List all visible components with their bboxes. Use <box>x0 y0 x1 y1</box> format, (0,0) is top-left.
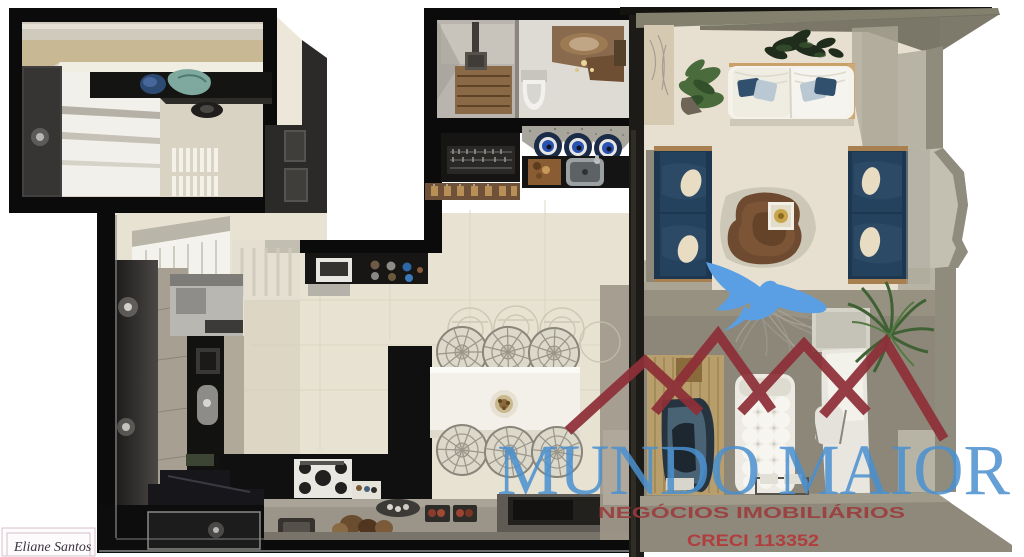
svg-text:NEGÓCIOS IMOBILIÁRIOS: NEGÓCIOS IMOBILIÁRIOS <box>598 503 905 522</box>
svg-text:CRECI 113352: CRECI 113352 <box>687 531 819 550</box>
svg-text:MUNDO MAIOR: MUNDO MAIOR <box>497 430 1010 510</box>
svg-text:Eliane Santos: Eliane Santos <box>13 540 92 555</box>
